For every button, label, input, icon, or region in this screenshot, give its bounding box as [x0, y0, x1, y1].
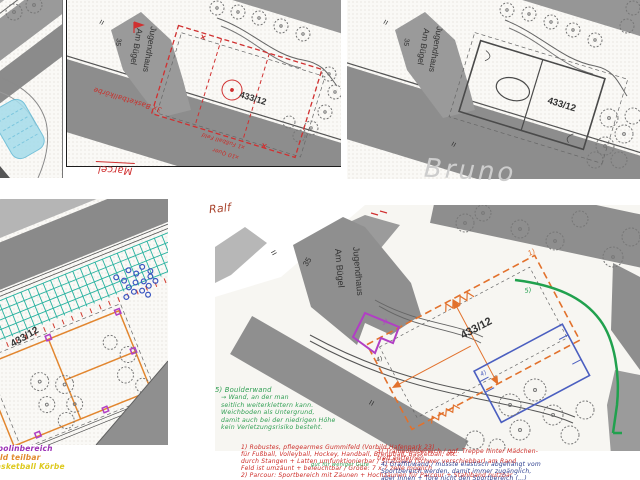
- note-line: Sportbereich werden, damit immer zugängl…: [381, 468, 541, 475]
- center-circle: [493, 74, 532, 105]
- note-line: 4) Graffitiwand / müsste elastisch abgeh…: [381, 461, 541, 468]
- parcel-number: 433/12: [546, 95, 577, 114]
- scanned-plan-collage: Jugendhaus Am Bügel 35 =: [0, 0, 640, 480]
- panel-bottom-left-plan: 433/12: [0, 199, 168, 445]
- plan-drawing-bottom-left: 433/12: [0, 199, 168, 445]
- bl-note-trampolinbereich: Trampolinbereich: [0, 444, 53, 453]
- signature-ralf: Ralf: [208, 201, 231, 216]
- path-edge: [509, 28, 593, 74]
- path-edge: [217, 18, 337, 86]
- plan-drawing-top-left: [0, 0, 62, 178]
- path-edge: [505, 20, 627, 96]
- blue-scribble-cluster: [112, 259, 162, 306]
- note-trampolinbereich: 3) Trampolinbereich / ggf. Treppe hinter…: [377, 448, 538, 462]
- note-line: aber Innen + Tore nicht den Sportbereich…: [381, 475, 541, 480]
- note-graffitiwand: 4) Graffitiwand / müsste elastisch abgeh…: [381, 461, 541, 480]
- map-equals-symbol: =: [380, 17, 391, 27]
- note-line: 3) Trampolinbereich / ggf. Treppe hinter…: [377, 448, 538, 455]
- plan-drawing-bottom-right: Jugendhaus Am Bügel 35 = =: [215, 205, 640, 480]
- signature-bruno: Bruno: [423, 154, 517, 189]
- note-line: damit auch bei der niedrigen Höhe: [215, 417, 335, 424]
- note-line: Weichboden als Untergrund,: [215, 409, 335, 416]
- zone-label-boulderwand: 5): [524, 286, 532, 295]
- note-line: kein Verletzungsrisiko besteht.: [215, 424, 335, 431]
- house-number: 35: [402, 38, 410, 47]
- bl-note-basketball-koerbe: Basketball Körbe: [0, 462, 65, 471]
- parcel-number: 433/12: [9, 325, 41, 350]
- parcel-number: 433/12: [238, 89, 267, 107]
- note-boulderwand: 5) Boulderwand → Wand, an der man seitli…: [215, 387, 335, 431]
- panel-top-left-plan: [0, 0, 63, 178]
- plan-drawing-top-middle: Jugendhaus Am Bügel 35 =: [67, 0, 341, 166]
- map-equals-symbol: =: [96, 17, 107, 27]
- panel-bottom-right-plan-ralf: Jugendhaus Am Bügel 35 = =: [215, 205, 640, 480]
- panel-top-middle-plan-marcel: Jugendhaus Am Bügel 35 =: [66, 0, 341, 167]
- pool-highlight: [0, 96, 48, 162]
- road: [67, 40, 341, 166]
- house-number: 35: [114, 38, 122, 47]
- plan-drawing-top-right: Jugendhaus Am Bügel 35 = =: [347, 0, 640, 179]
- path-edge: [221, 26, 301, 68]
- panel-top-right-plan-bruno: Jugendhaus Am Bügel 35 = =: [347, 0, 640, 179]
- note-gummifeld-green-inline: gut für weniger Gute: [311, 462, 369, 468]
- bl-note-feld-teilbar: Feld teilbar: [0, 453, 41, 462]
- note-line: 5) Boulderwand: [215, 387, 335, 394]
- scan-mark: [0, 166, 10, 178]
- signature-marcel: Marcel: [96, 161, 135, 176]
- note-line: → Wand, an der man: [215, 394, 335, 401]
